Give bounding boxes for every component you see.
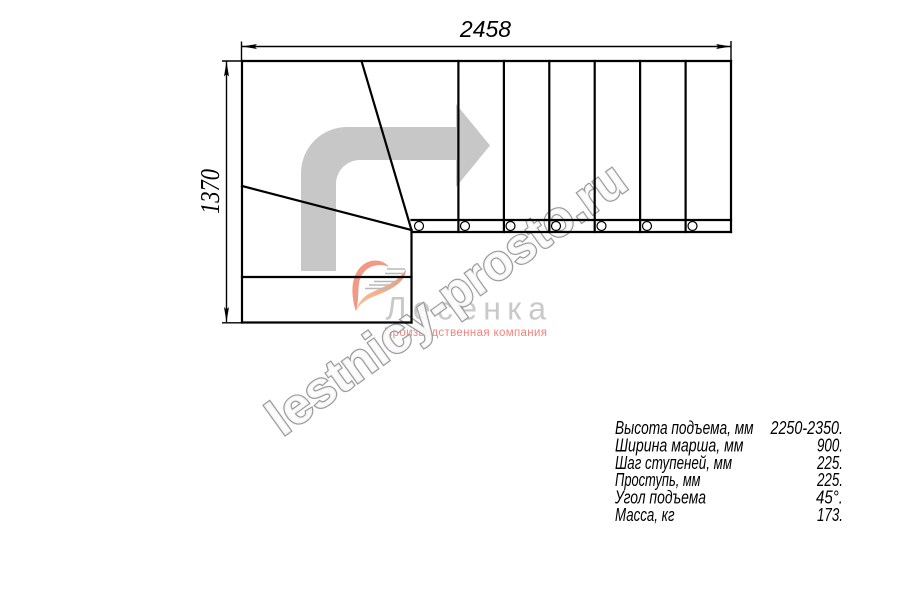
svg-text:173.: 173. [817, 505, 843, 525]
svg-text:2458: 2458 [459, 16, 511, 42]
svg-text:1370: 1370 [195, 169, 225, 214]
svg-text:Масса, кг: Масса, кг [615, 505, 675, 525]
